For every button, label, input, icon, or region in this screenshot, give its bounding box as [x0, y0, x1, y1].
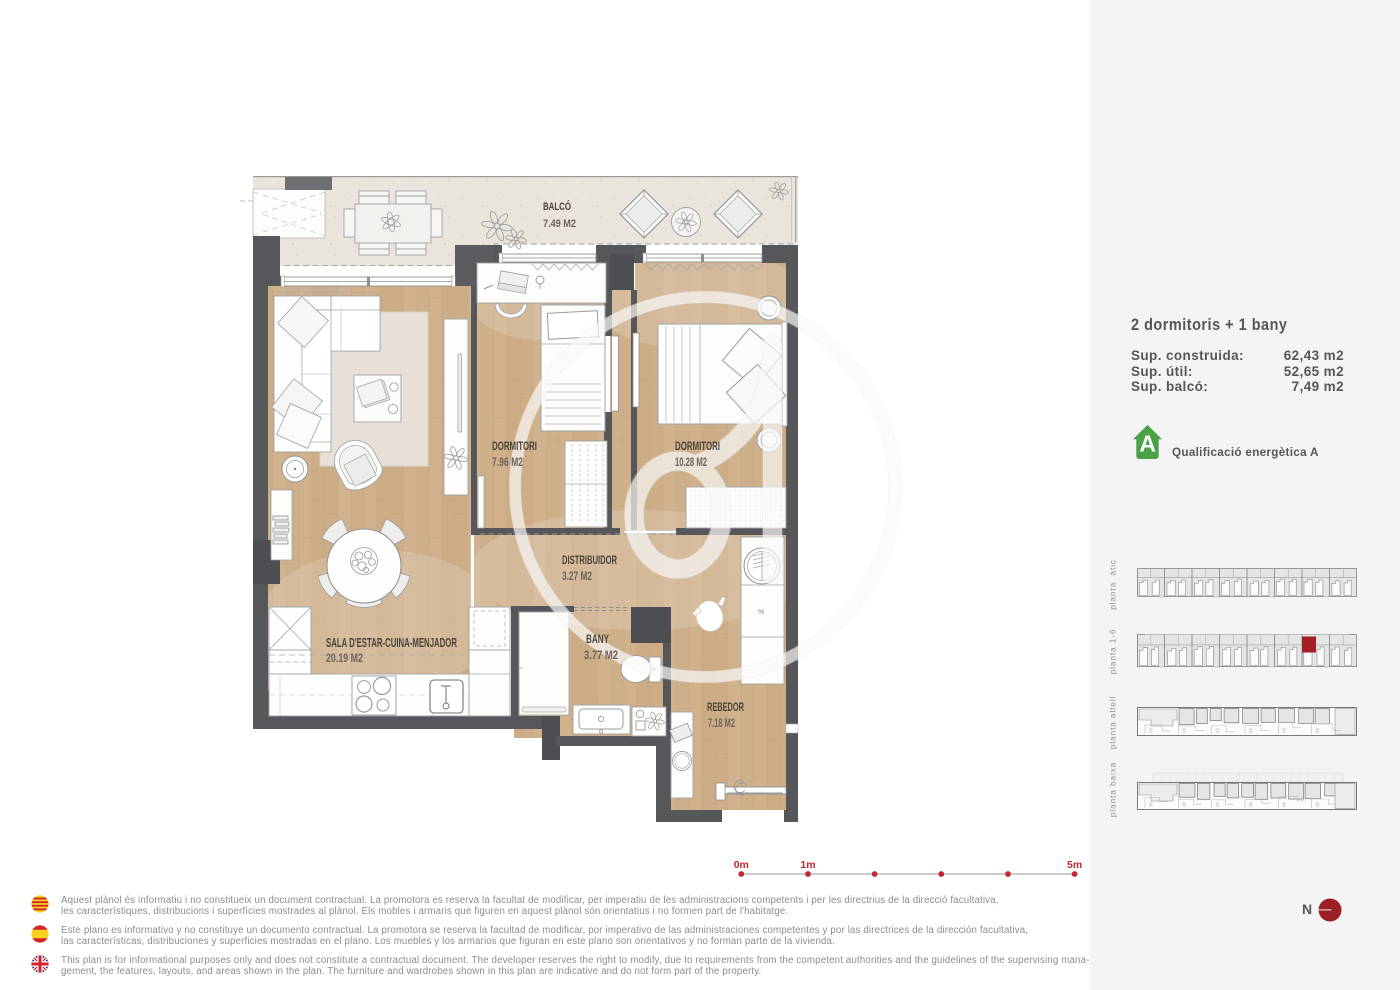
svg-text:REBEDOR: REBEDOR — [707, 700, 744, 714]
svg-text:3.27 M2: 3.27 M2 — [562, 571, 592, 583]
svg-text:BANY: BANY — [586, 632, 609, 646]
svg-text:10.28 M2: 10.28 M2 — [675, 457, 707, 469]
svg-text:7.49 M2: 7.49 M2 — [543, 218, 576, 230]
svg-text:3.77 M2: 3.77 M2 — [584, 650, 618, 662]
svg-text:BALCÓ: BALCÓ — [543, 200, 571, 213]
svg-text:A: A — [1139, 431, 1156, 457]
svg-text:SALA D'ESTAR-CUINA-MENJADOR: SALA D'ESTAR-CUINA-MENJADOR — [326, 636, 457, 650]
svg-text:DORMITORI: DORMITORI — [492, 439, 537, 453]
svg-text:0m: 0m — [734, 859, 749, 871]
svg-text:5m: 5m — [1067, 859, 1082, 871]
svg-text:20.19 M2: 20.19 M2 — [326, 651, 363, 665]
svg-text:DISTRIBUIDOR: DISTRIBUIDOR — [562, 553, 617, 567]
svg-text:%: % — [758, 609, 764, 616]
svg-text:7.18 M2: 7.18 M2 — [708, 718, 735, 730]
svg-text:7.96 M2: 7.96 M2 — [492, 457, 523, 469]
svg-text:DORMITORI: DORMITORI — [675, 439, 720, 453]
svg-text:1m: 1m — [800, 859, 815, 871]
